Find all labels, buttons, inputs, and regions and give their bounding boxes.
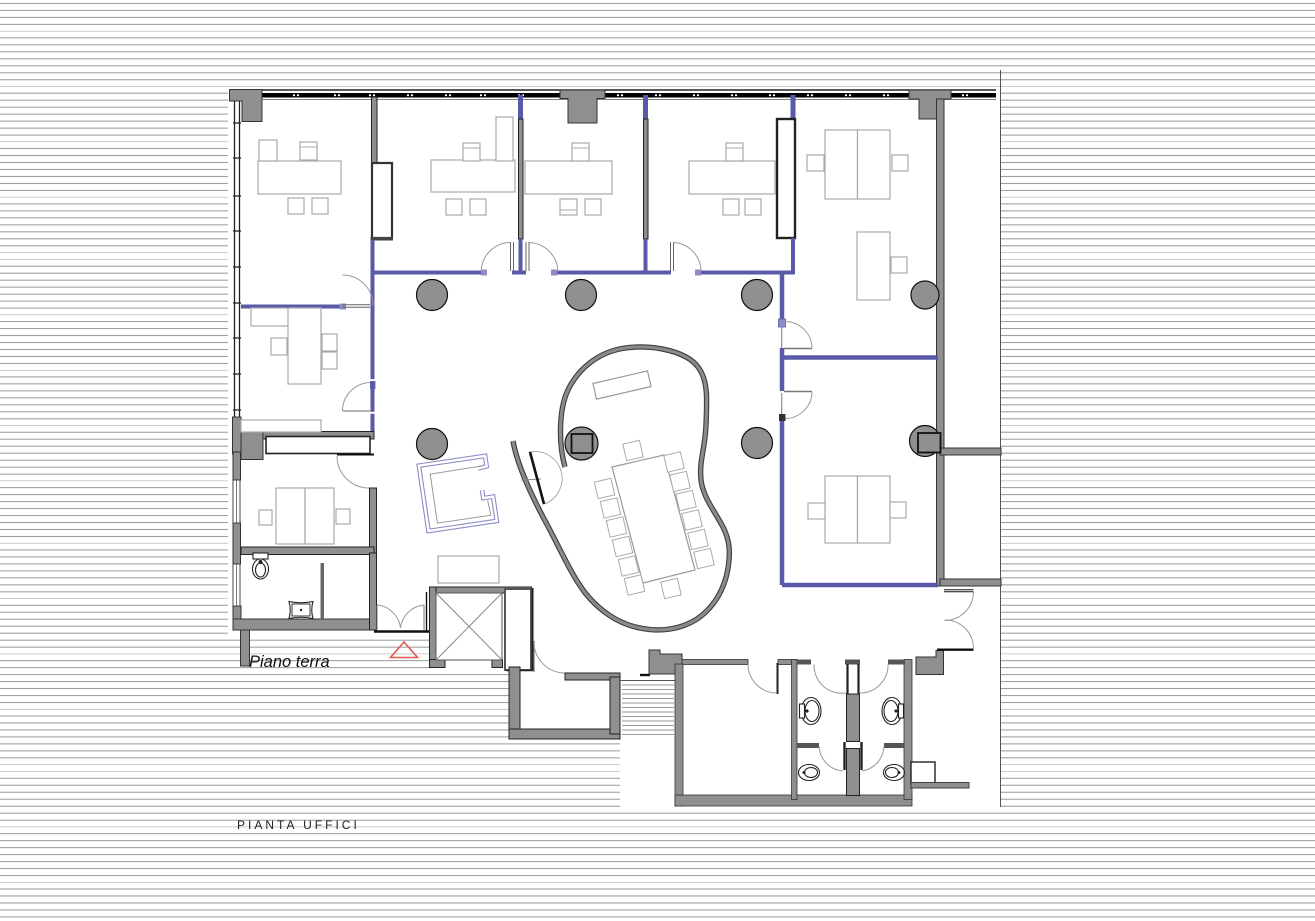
svg-text:Piano terra: Piano terra (249, 653, 330, 671)
svg-text:PIANTA UFFICI: PIANTA UFFICI (237, 818, 360, 832)
